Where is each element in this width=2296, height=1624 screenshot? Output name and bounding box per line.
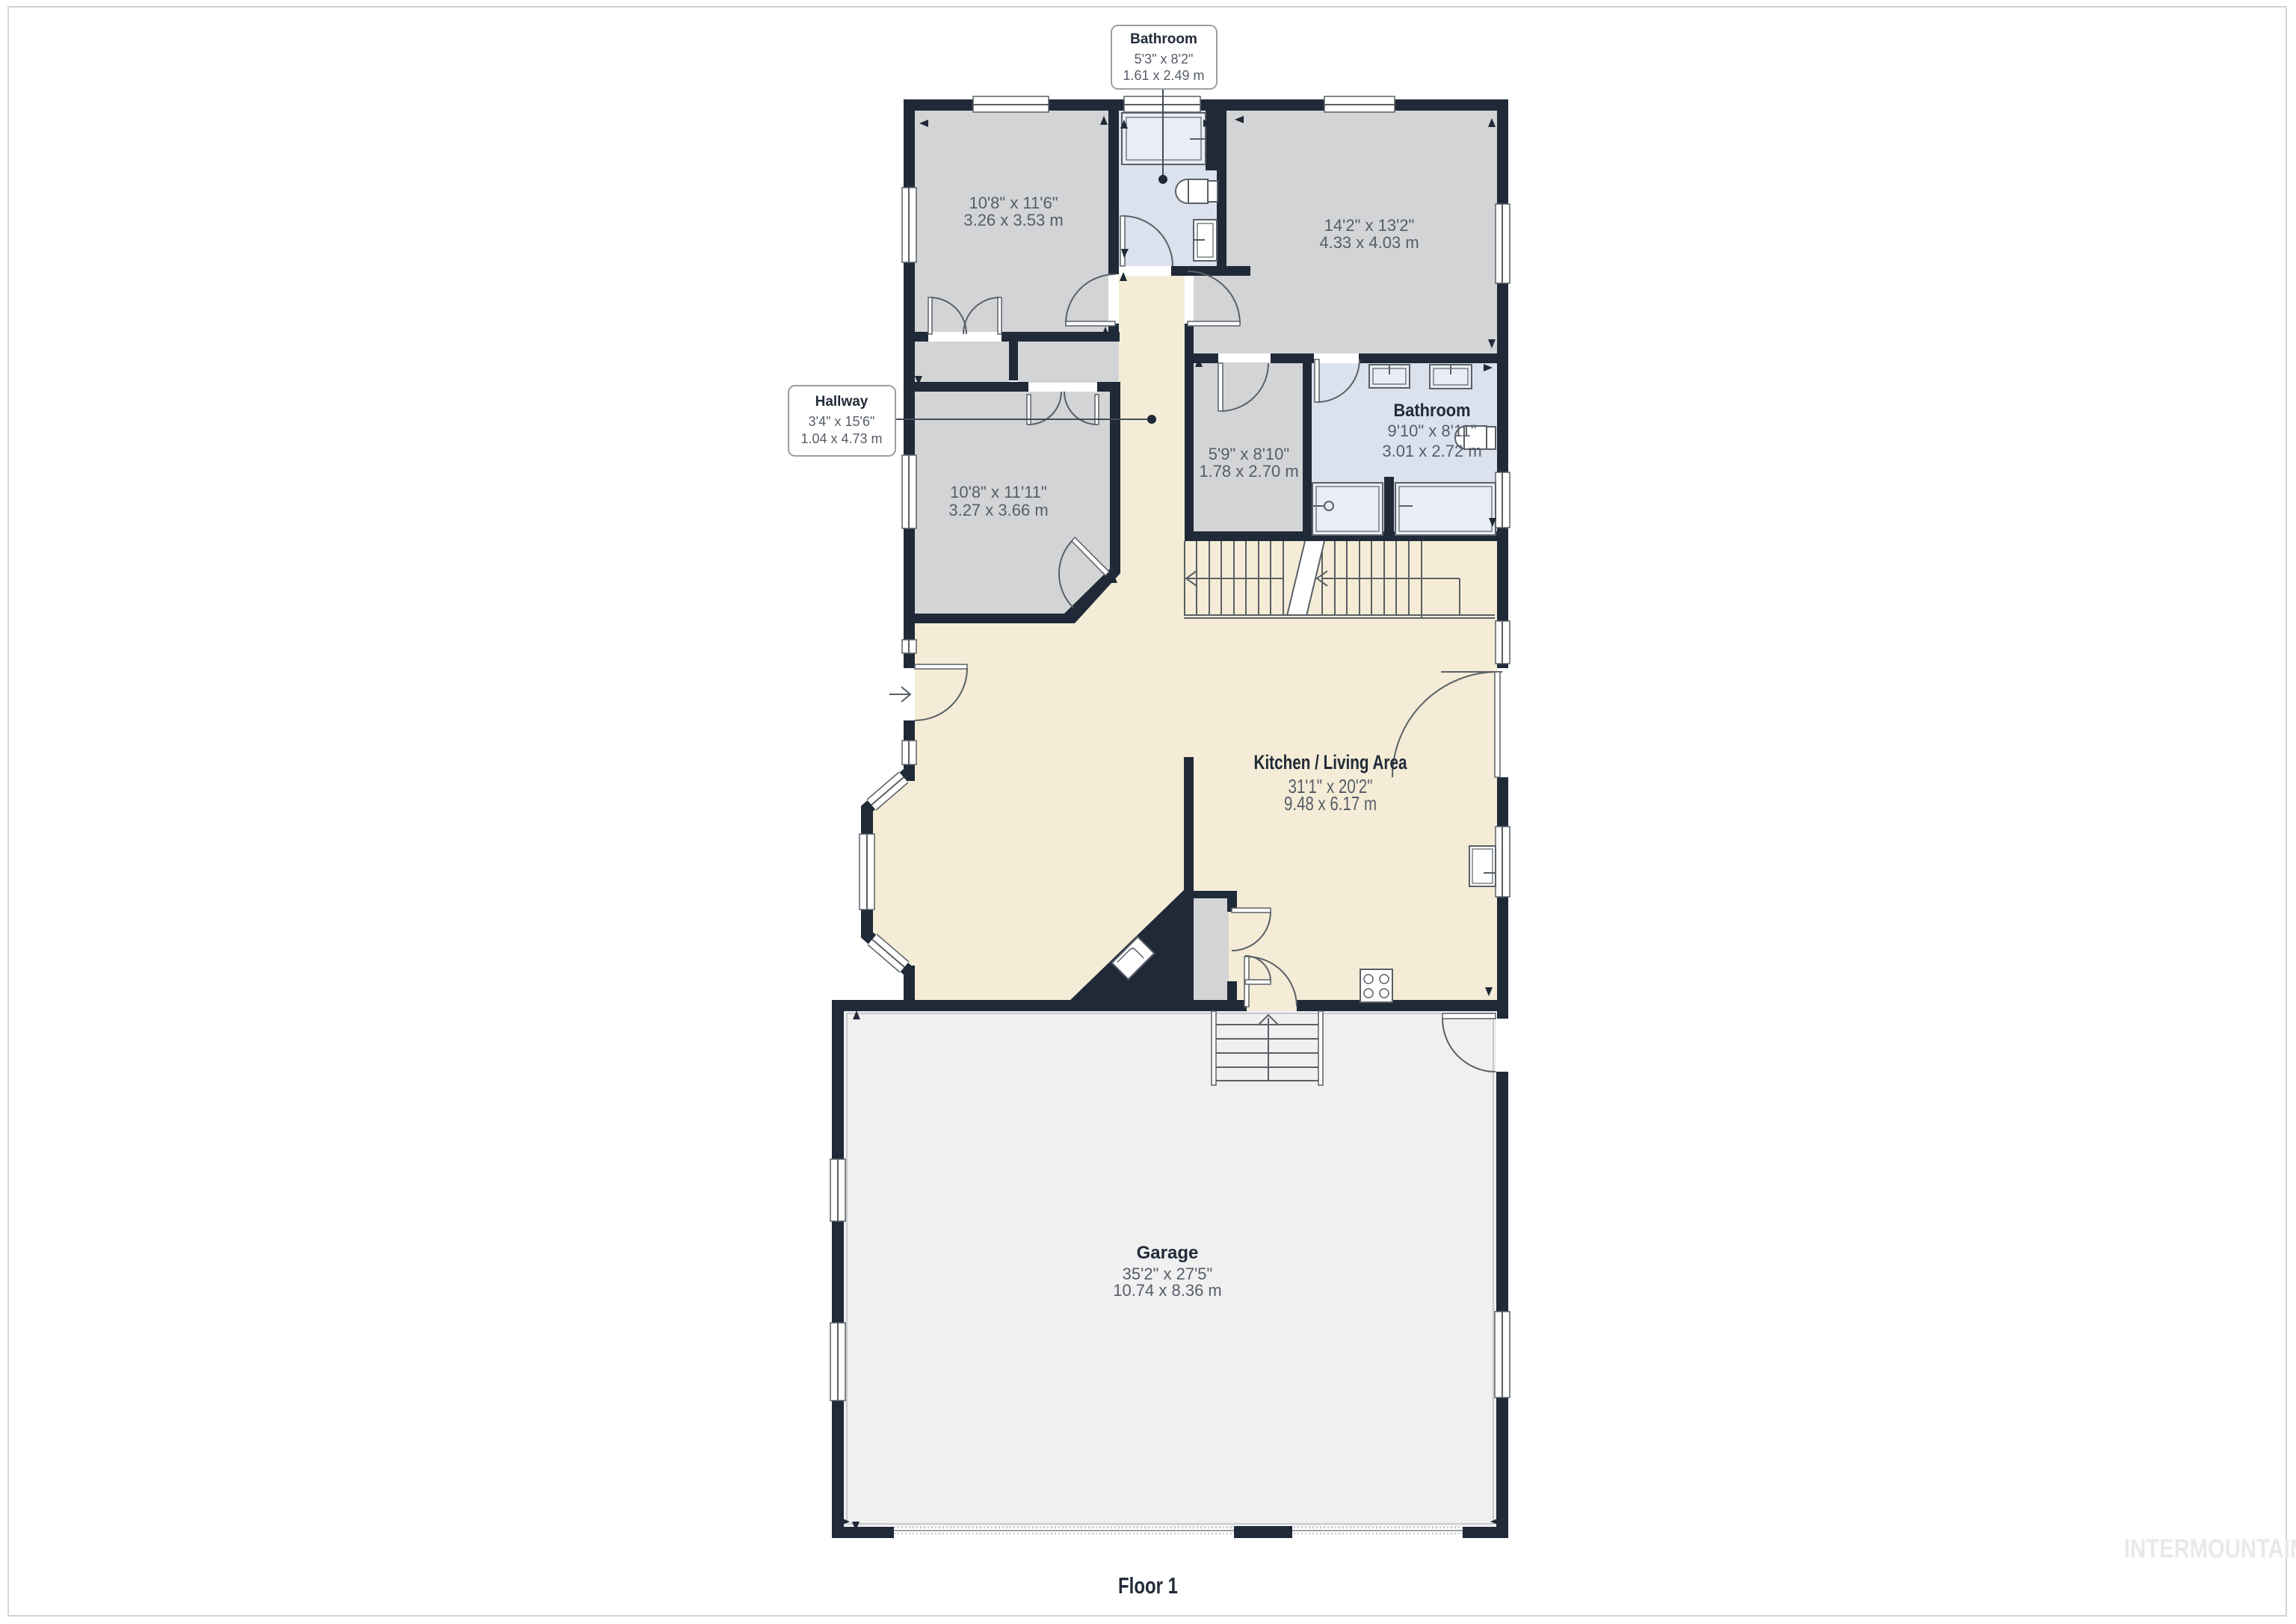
svg-text:14'2" x 13'2": 14'2" x 13'2" — [1324, 216, 1415, 235]
svg-text:5'3" x 8'2": 5'3" x 8'2" — [1135, 52, 1194, 67]
svg-text:INTERMOUNTAIN: INTERMOUNTAIN — [2124, 1534, 2296, 1563]
svg-text:3.27 x 3.66 m: 3.27 x 3.66 m — [948, 501, 1048, 519]
svg-text:9.48 x 6.17 m: 9.48 x 6.17 m — [1284, 792, 1377, 815]
svg-text:10'8" x 11'11": 10'8" x 11'11" — [950, 483, 1047, 501]
svg-text:3.01 x 2.72 m: 3.01 x 2.72 m — [1382, 442, 1481, 460]
svg-text:Bathroom: Bathroom — [1394, 401, 1471, 421]
svg-text:9'10" x 8'11": 9'10" x 8'11" — [1387, 422, 1476, 440]
svg-text:10'8" x 11'6": 10'8" x 11'6" — [969, 194, 1058, 212]
svg-text:Garage: Garage — [1137, 1243, 1199, 1263]
svg-text:3'4" x 15'6": 3'4" x 15'6" — [809, 414, 875, 429]
svg-text:4.33 x 4.03 m: 4.33 x 4.03 m — [1319, 233, 1419, 252]
svg-text:Bathroom: Bathroom — [1130, 31, 1197, 47]
svg-text:1.61 x 2.49 m: 1.61 x 2.49 m — [1123, 68, 1204, 83]
svg-text:10.74 x 8.36 m: 10.74 x 8.36 m — [1113, 1281, 1222, 1300]
svg-text:Kitchen / Living Area: Kitchen / Living Area — [1254, 751, 1408, 774]
svg-text:1.04 x 4.73 m: 1.04 x 4.73 m — [800, 431, 882, 446]
svg-text:Hallway: Hallway — [815, 394, 868, 410]
svg-text:Floor 1: Floor 1 — [1118, 1572, 1178, 1599]
svg-text:5'9" x 8'10": 5'9" x 8'10" — [1209, 445, 1289, 463]
svg-text:1.78 x 2.70 m: 1.78 x 2.70 m — [1199, 462, 1298, 481]
svg-text:3.26 x 3.53 m: 3.26 x 3.53 m — [963, 211, 1063, 229]
